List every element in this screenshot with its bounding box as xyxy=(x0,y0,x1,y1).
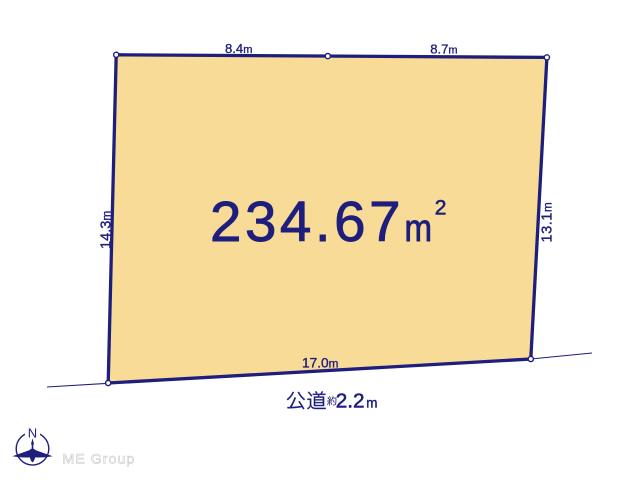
svg-text:2: 2 xyxy=(435,197,447,220)
svg-text:m: m xyxy=(366,395,377,410)
svg-text:13.1m: 13.1m xyxy=(539,202,555,243)
svg-text:8.7m: 8.7m xyxy=(430,42,457,57)
svg-text:m: m xyxy=(405,208,433,250)
svg-text:14.3m: 14.3m xyxy=(98,211,114,249)
svg-text:2.2: 2.2 xyxy=(336,389,365,412)
svg-text:ME Group: ME Group xyxy=(63,451,136,467)
svg-text:17.0m: 17.0m xyxy=(302,356,338,371)
svg-text:N: N xyxy=(28,425,37,440)
svg-text:234.67: 234.67 xyxy=(210,190,401,253)
svg-text:8.4m: 8.4m xyxy=(225,41,252,56)
